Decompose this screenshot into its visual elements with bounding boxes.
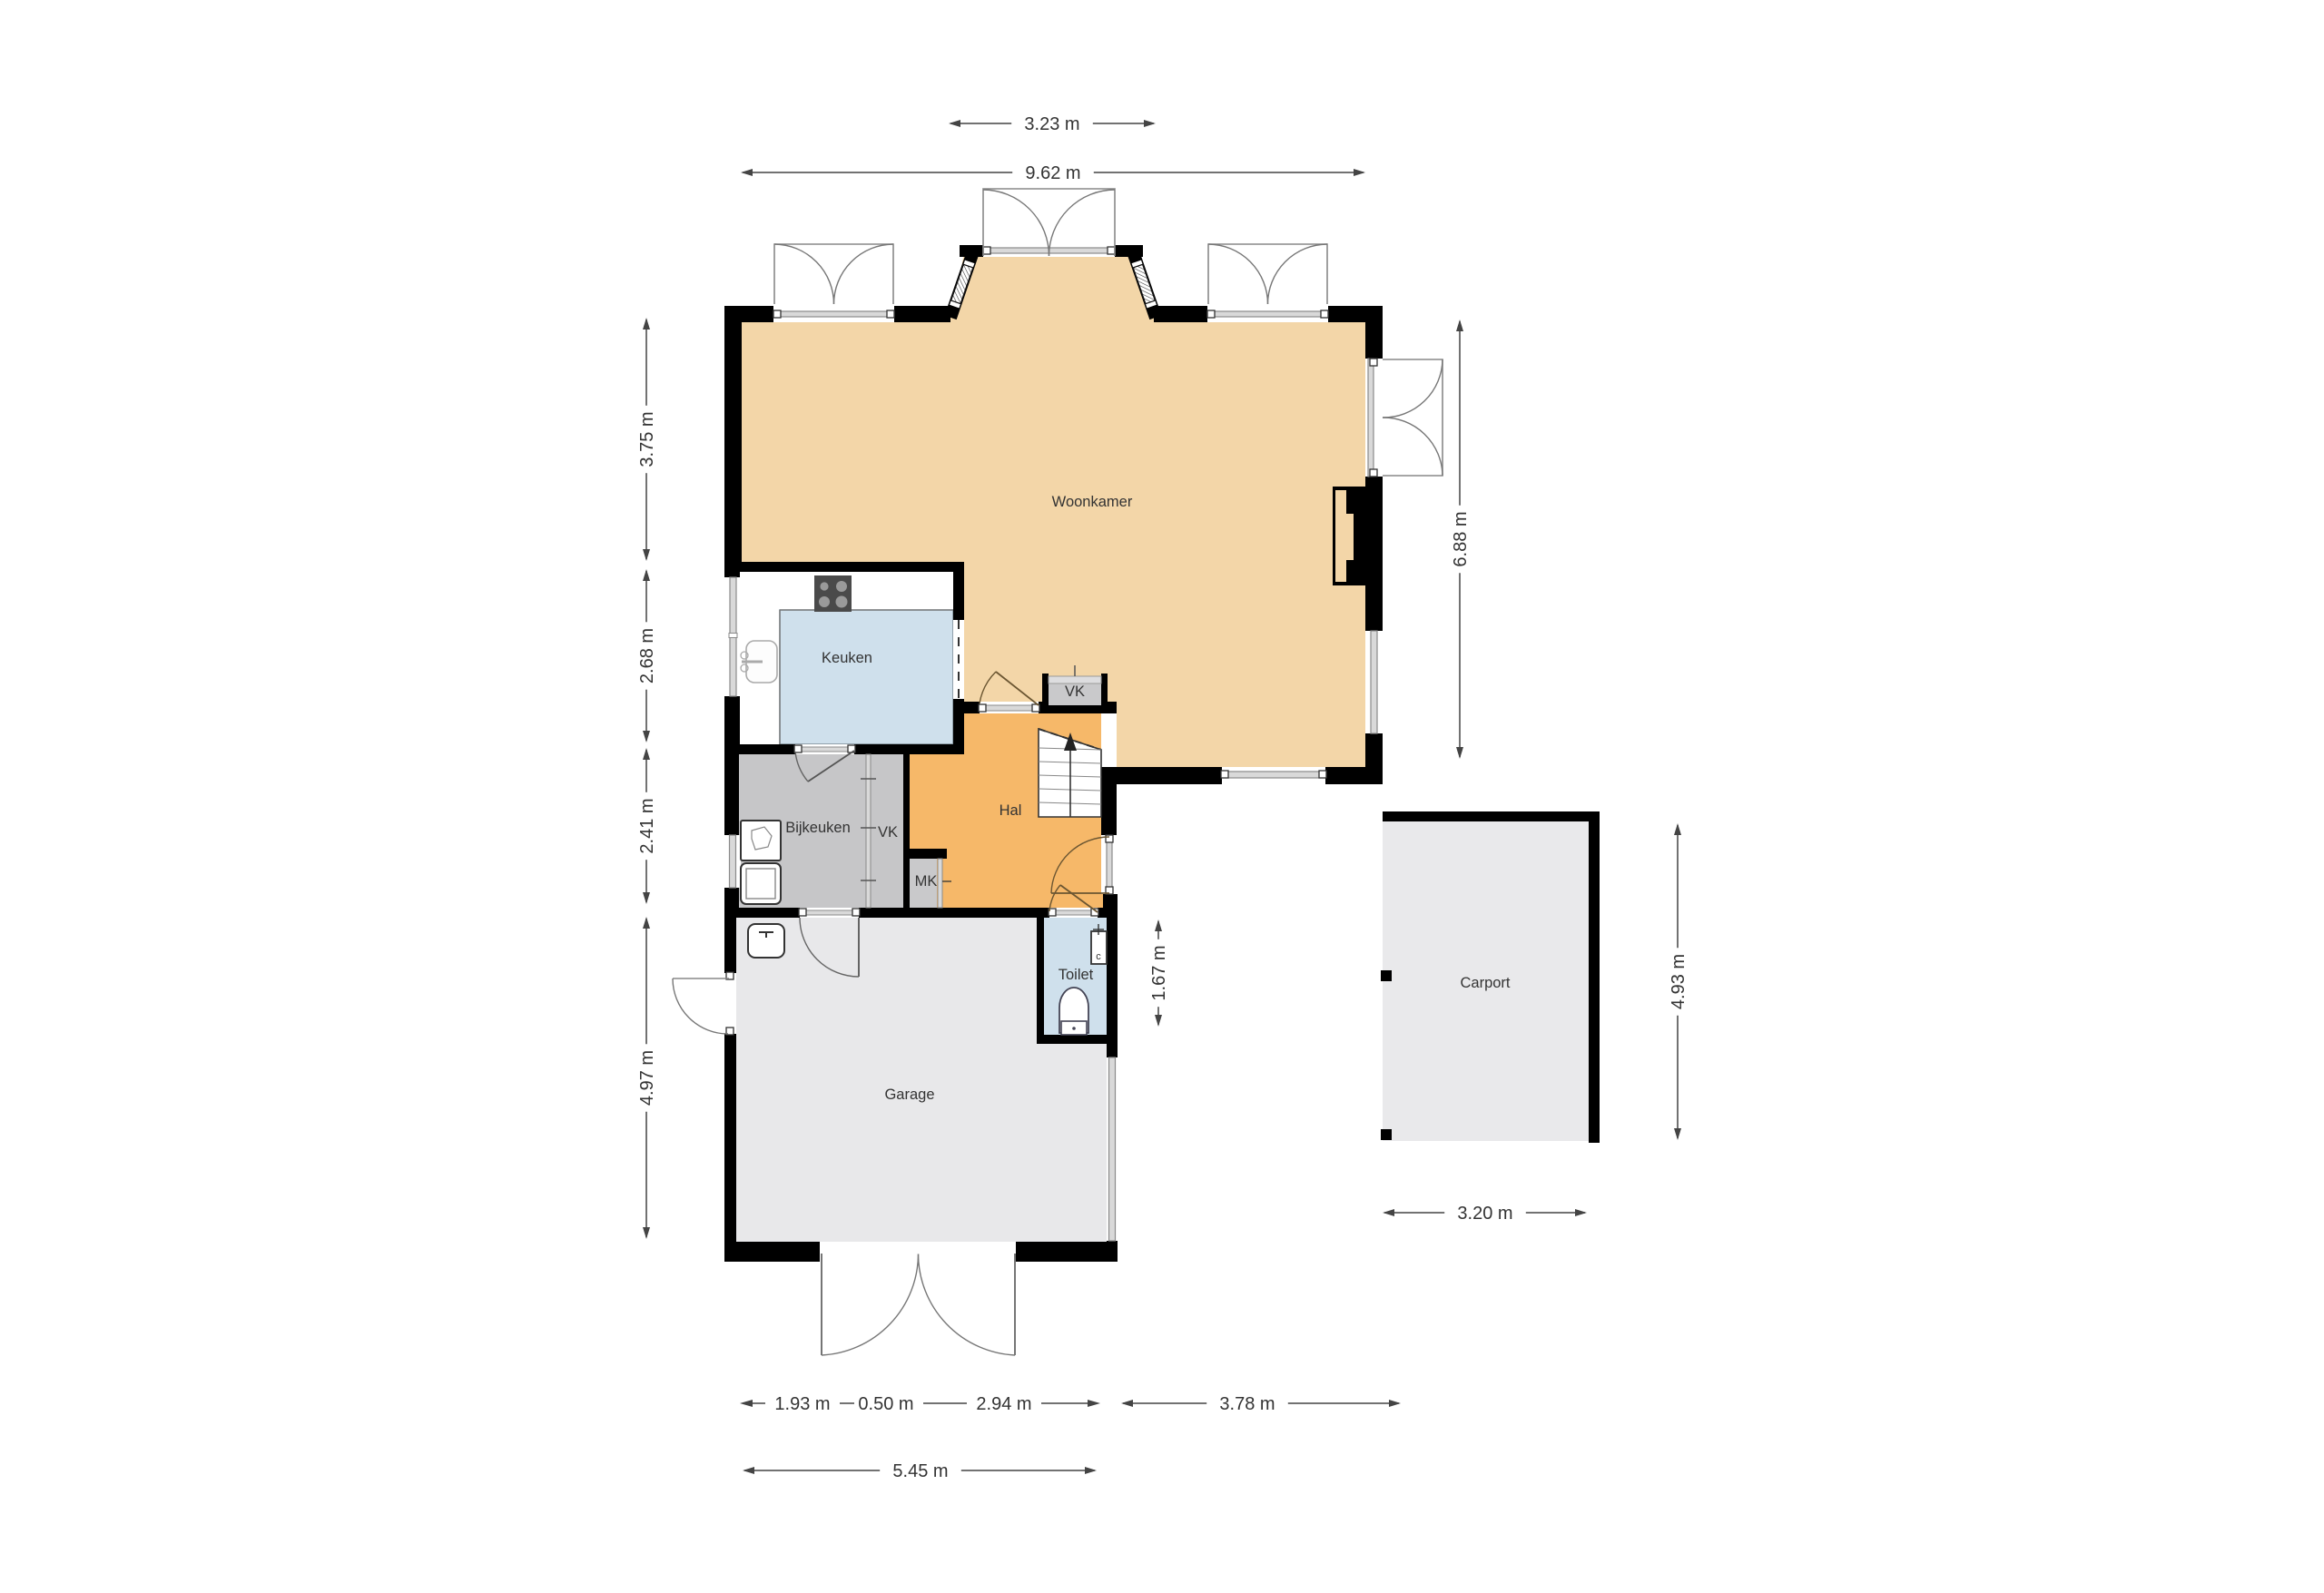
svg-text:3.78 m: 3.78 m <box>1219 1394 1275 1414</box>
svg-text:Bijkeuken: Bijkeuken <box>785 820 851 836</box>
svg-text:Hal: Hal <box>1000 802 1022 819</box>
svg-text:VK: VK <box>878 824 898 841</box>
svg-text:2.68 m: 2.68 m <box>637 628 657 683</box>
svg-text:Woonkamer: Woonkamer <box>1052 494 1133 510</box>
svg-text:3.75 m: 3.75 m <box>637 411 657 467</box>
svg-text:4.97 m: 4.97 m <box>637 1050 657 1106</box>
svg-text:Garage: Garage <box>884 1087 934 1103</box>
svg-text:c: c <box>1096 951 1101 962</box>
svg-text:2.41 m: 2.41 m <box>637 798 657 853</box>
svg-text:2.94 m: 2.94 m <box>976 1394 1031 1414</box>
svg-text:0.50 m: 0.50 m <box>858 1394 913 1414</box>
svg-text:3.20 m: 3.20 m <box>1457 1204 1512 1224</box>
svg-text:3.23 m: 3.23 m <box>1024 114 1079 134</box>
svg-text:5.45 m: 5.45 m <box>892 1461 948 1481</box>
svg-text:9.62 m: 9.62 m <box>1025 163 1080 183</box>
svg-text:MK: MK <box>915 873 938 890</box>
svg-text:VK: VK <box>1065 683 1085 700</box>
svg-text:Carport: Carport <box>1460 975 1510 991</box>
svg-text:Toilet: Toilet <box>1059 967 1094 983</box>
svg-text:1.93 m: 1.93 m <box>774 1394 830 1414</box>
svg-text:1.67 m: 1.67 m <box>1149 945 1169 1000</box>
svg-text:4.93 m: 4.93 m <box>1669 954 1689 1009</box>
svg-text:Keuken: Keuken <box>822 650 872 666</box>
svg-text:6.88 m: 6.88 m <box>1451 511 1471 566</box>
